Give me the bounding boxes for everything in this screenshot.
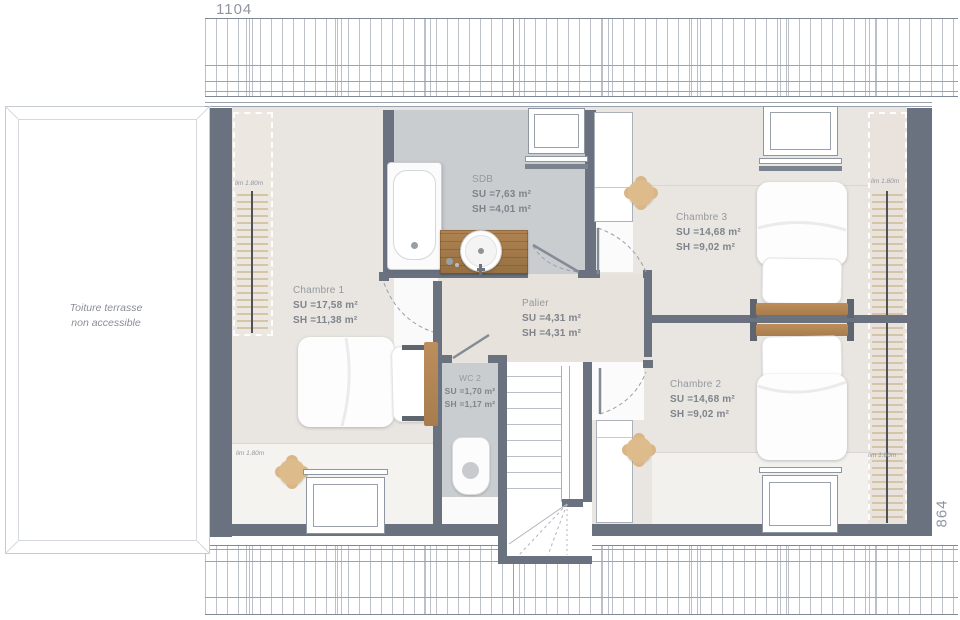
room-label-chambre2: Chambre 2 SU =14,68 m² SH =9,02 m² [670, 377, 735, 422]
limit-label-left: lim 1.80m [235, 180, 263, 187]
dimension-width: 1104 [216, 1, 252, 18]
door-leaf-sdb [533, 245, 579, 272]
door-arc-chambre3 [598, 228, 646, 272]
duvet-folds [342, 222, 846, 426]
room-su: SU =7,63 m² [472, 187, 531, 202]
stair-winder-lines [509, 504, 567, 555]
room-su: SU =4,31 m² [522, 311, 581, 326]
door-leaf-wc2 [453, 335, 489, 358]
door-arcs [384, 228, 646, 414]
room-name: SDB [472, 172, 531, 187]
terrace-miter-lines [5, 106, 210, 554]
floor-plan: Toiture terrasse non accessible [0, 0, 960, 620]
room-sh: SH =11,38 m² [293, 313, 358, 328]
door-arc-chambre2 [600, 372, 646, 414]
door-arc-chambre1 [384, 283, 433, 332]
dimension-height: 864 [934, 494, 951, 534]
limit-label-chambre1: lim 1.80m [236, 450, 264, 457]
limit-label-chambre2: lim 1.80m [868, 452, 896, 459]
room-name: WC 2 [441, 372, 499, 385]
room-name: Chambre 2 [670, 377, 735, 392]
room-su: SU =14,68 m² [670, 392, 735, 407]
room-sh: SH =4,01 m² [472, 202, 531, 217]
room-label-palier: Palier SU =4,31 m² SH =4,31 m² [522, 296, 581, 341]
room-label-chambre1: Chambre 1 SU =17,58 m² SH =11,38 m² [293, 283, 358, 328]
room-su: SU =1,70 m² [441, 385, 499, 398]
room-sh: SH =9,02 m² [676, 240, 741, 255]
room-sh: SH =1,17 m² [441, 398, 499, 411]
room-su: SU =17,58 m² [293, 298, 358, 313]
limit-label-chambre3: lim 1.80m [871, 178, 899, 185]
vector-overlay [0, 0, 960, 620]
room-label-wc2: WC 2 SU =1,70 m² SH =1,17 m² [441, 372, 499, 411]
room-label-sdb: SDB SU =7,63 m² SH =4,01 m² [472, 172, 531, 217]
room-sh: SH =9,02 m² [670, 407, 735, 422]
room-sh: SH =4,31 m² [522, 326, 581, 341]
room-su: SU =14,68 m² [676, 225, 741, 240]
room-label-chambre3: Chambre 3 SU =14,68 m² SH =9,02 m² [676, 210, 741, 255]
room-name: Chambre 3 [676, 210, 741, 225]
room-name: Chambre 1 [293, 283, 358, 298]
room-name: Palier [522, 296, 581, 311]
